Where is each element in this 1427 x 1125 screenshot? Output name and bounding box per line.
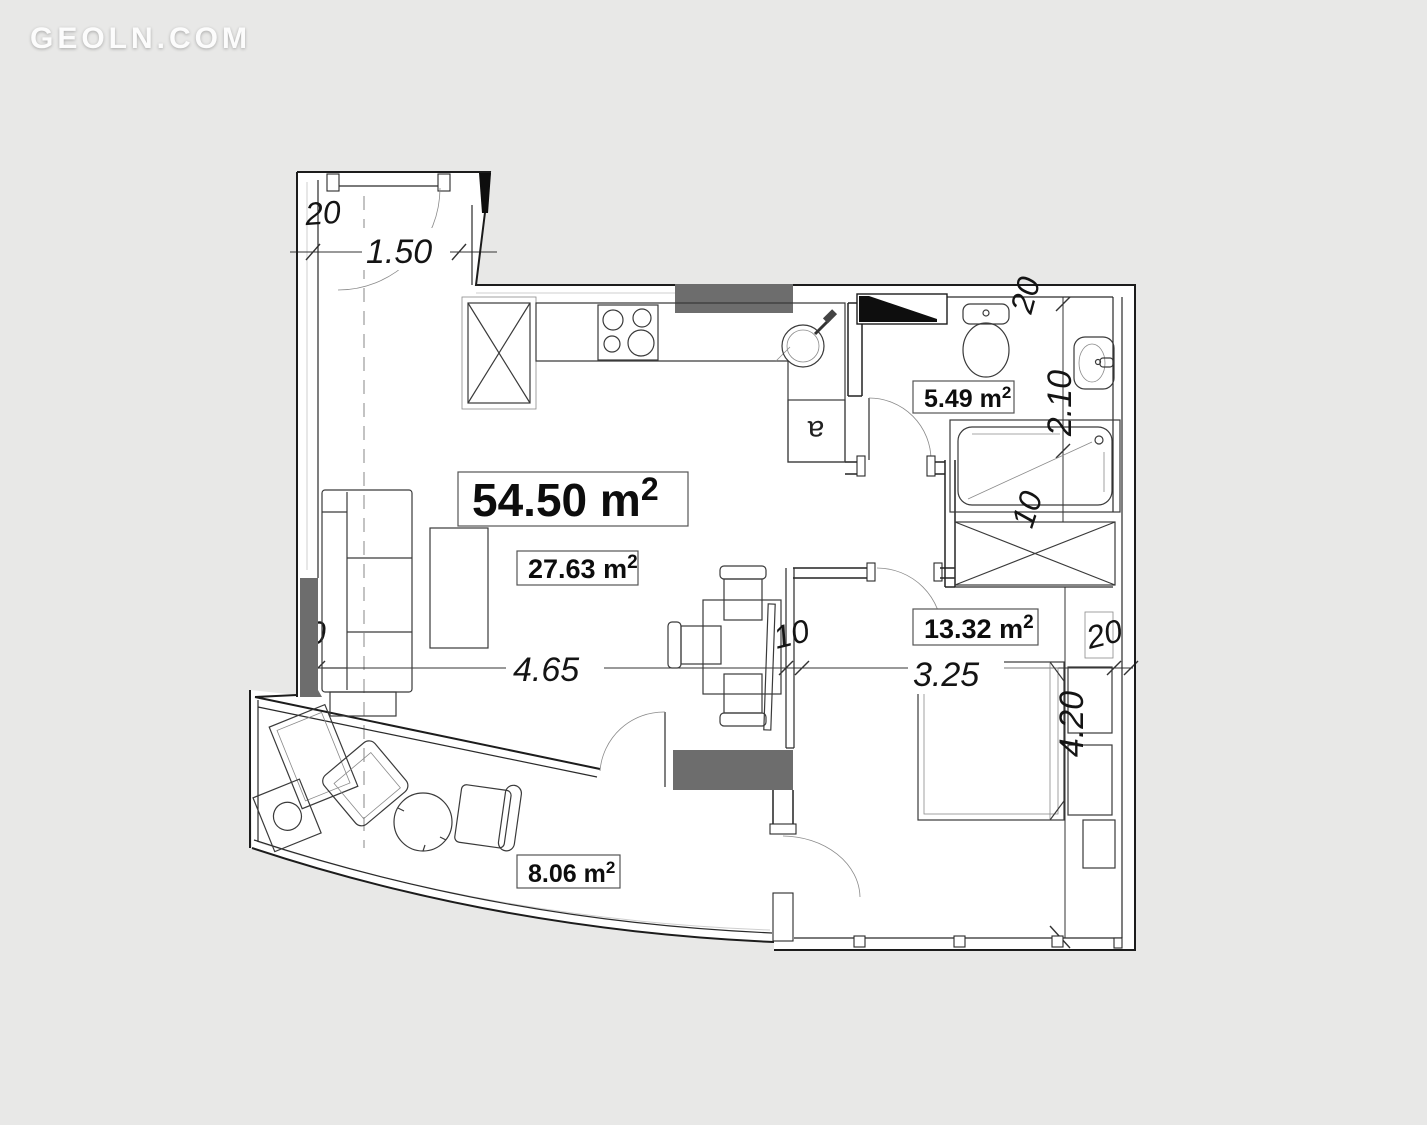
dim-bedroom-depth: 4.20 xyxy=(1053,691,1091,757)
dim-bath-width: 2.10 xyxy=(1041,370,1079,437)
floor-plan-drawing: 0 xyxy=(0,0,1427,1125)
dim-entry-wall: 20 xyxy=(303,194,342,232)
bedroom-balcony-door-leaf xyxy=(773,893,793,941)
bathroom-area-label: 5.49 m2 xyxy=(924,383,1011,413)
living-area-label: 27.63 m2 xyxy=(528,552,638,584)
appliance-letter: a xyxy=(807,414,824,447)
geoln-watermark: GEOLN.COM xyxy=(30,22,251,56)
floor-plan-page: 0 xyxy=(0,0,1427,1125)
dim-living-width: 4.65 xyxy=(513,651,579,689)
balcony-area-label: 8.06 m2 xyxy=(528,858,615,888)
wall-block-balcony xyxy=(673,750,793,790)
wall-block-kitchen xyxy=(675,284,793,313)
dim-entry-width: 1.50 xyxy=(366,233,432,271)
dim-bedroom-width: 3.25 xyxy=(913,656,979,694)
bedroom-area-label: 13.32 m2 xyxy=(924,612,1034,644)
total-area-label: 54.50 m2 xyxy=(472,471,659,526)
